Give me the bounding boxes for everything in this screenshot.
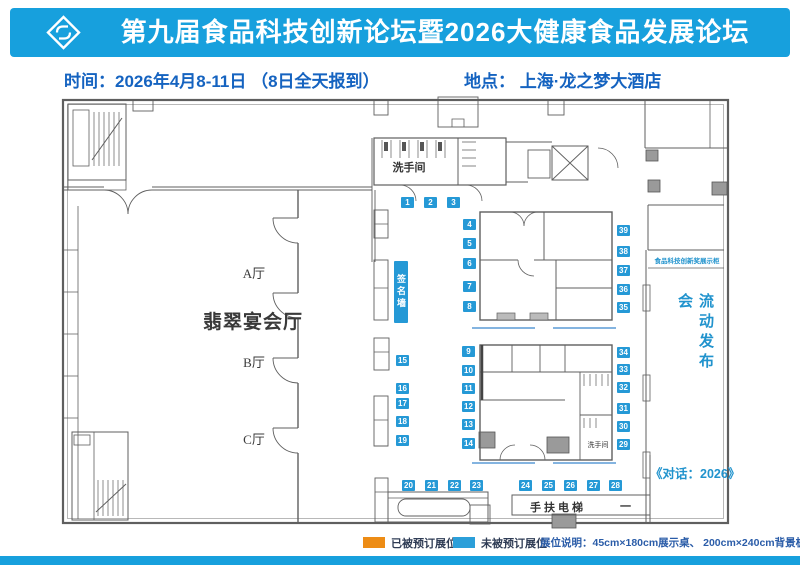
restroom-inner-label: 洗手间 — [581, 440, 615, 450]
award-display-label: 食品科技创新奖展示柜 — [647, 255, 727, 265]
hall-c-label: C厅 — [232, 429, 276, 448]
bottom-accent-bar — [0, 556, 800, 565]
escalator-dash: 一 — [620, 498, 631, 514]
mobile-launch-area-label: 流动发布会 — [674, 293, 716, 383]
signature-wall: 签名墙 — [394, 261, 408, 323]
booth-spec-note: 展位说明：45cm×180cm展示桌、 200cm×240cm背景板 — [540, 535, 800, 550]
escalator-label: 手扶电梯 — [530, 499, 586, 515]
legend-booked-label: 已被预订展位 — [391, 535, 457, 551]
event-floorplan-poster: 第九届食品科技创新论坛暨2026大健康食品发展论坛 时间：2026年4月8-11… — [0, 0, 800, 565]
dialogue-2026-label: 《对话：2026》 — [650, 463, 730, 482]
banquet-hall-label: 翡翠宴会厅 — [198, 307, 308, 334]
legend-booked-swatch — [363, 537, 385, 548]
legend-available-swatch — [453, 537, 475, 548]
hall-b-label: B厅 — [232, 352, 276, 371]
restroom-label: 洗手间 — [381, 159, 437, 175]
hall-a-label: A厅 — [232, 263, 276, 282]
legend-available-label: 未被预订展位 — [481, 535, 547, 551]
